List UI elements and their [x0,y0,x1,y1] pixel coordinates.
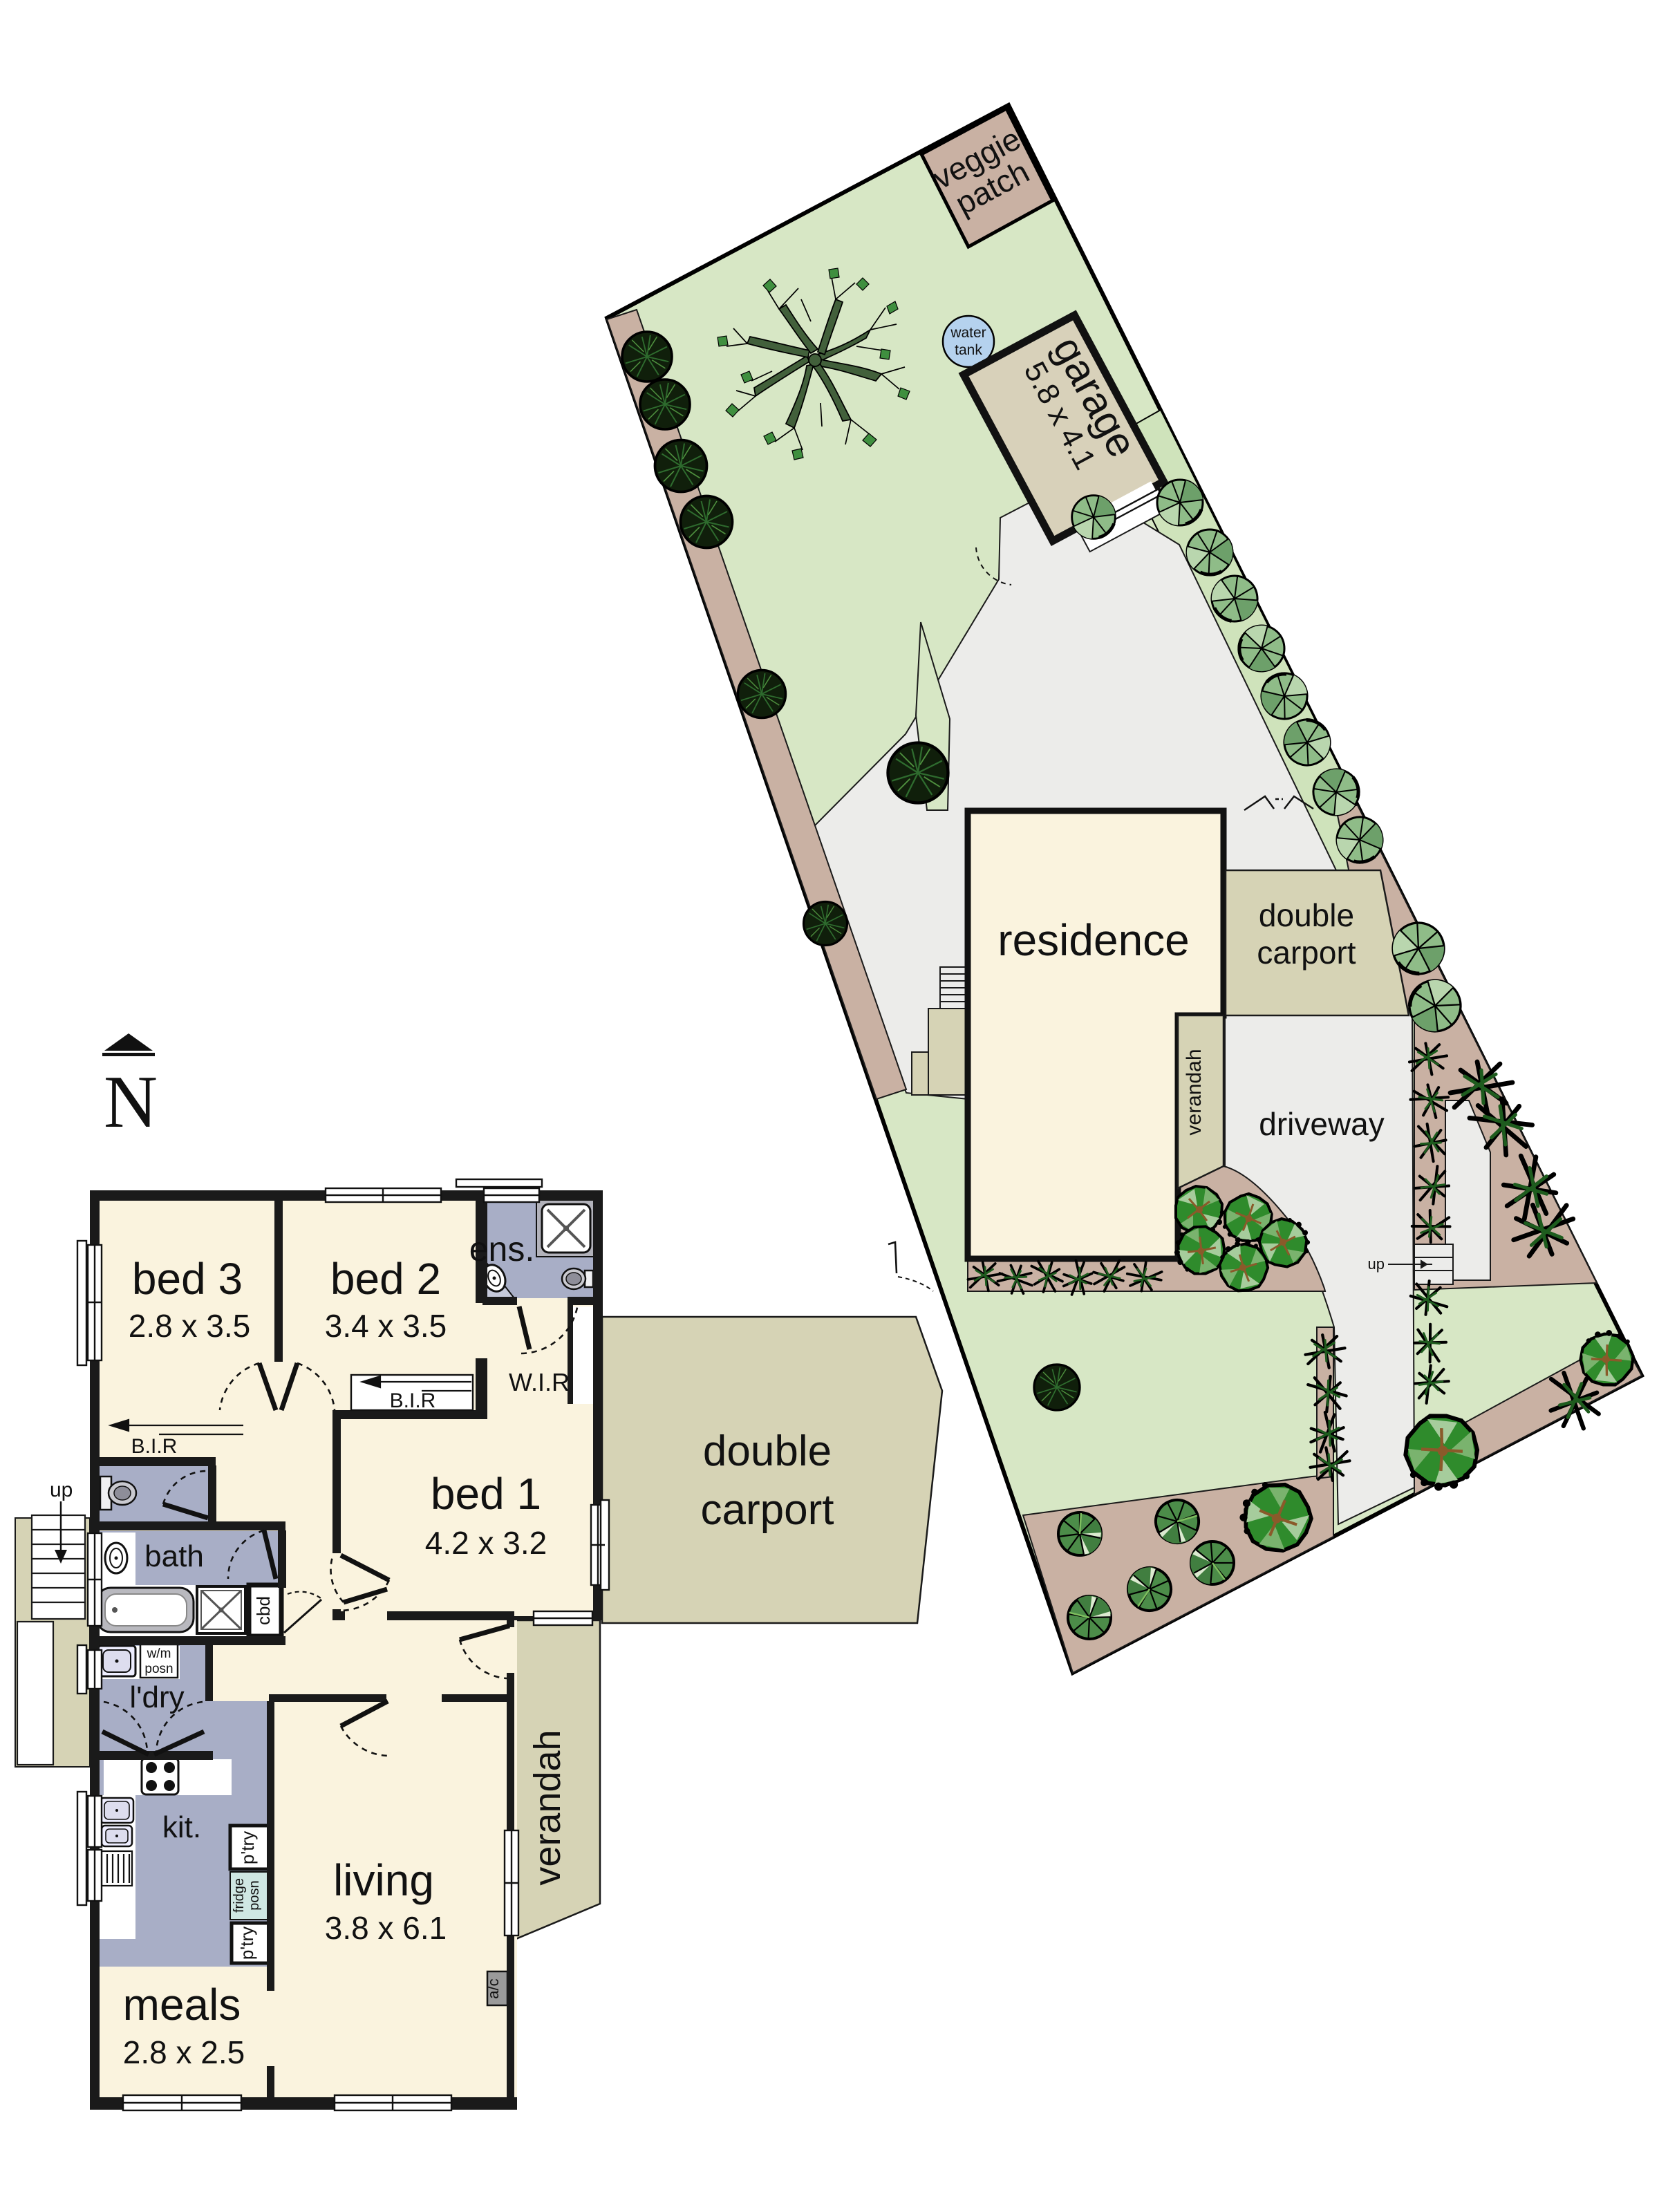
svg-text:water: water [950,325,986,341]
svg-text:p'try: p'try [236,1927,257,1960]
svg-text:cbd: cbd [253,1596,274,1625]
svg-text:meals: meals [123,1980,241,2030]
svg-text:posn: posn [144,1662,173,1676]
svg-text:3.4 x 3.5: 3.4 x 3.5 [325,1308,447,1344]
svg-text:l'dry: l'dry [129,1680,184,1714]
svg-text:N: N [104,1061,158,1143]
svg-text:driveway: driveway [1259,1106,1385,1142]
svg-text:up: up [50,1479,73,1501]
svg-text:a/c: a/c [485,1978,502,1998]
svg-text:verandah: verandah [527,1730,568,1885]
svg-text:bath: bath [144,1539,204,1573]
svg-text:3.8 x 6.1: 3.8 x 6.1 [325,1910,447,1946]
svg-text:carport: carport [701,1486,834,1534]
svg-text:2.8 x 3.5: 2.8 x 3.5 [129,1308,250,1344]
svg-text:bed 1: bed 1 [431,1469,541,1519]
svg-text:verandah: verandah [1183,1049,1206,1135]
svg-text:w/m: w/m [147,1647,171,1661]
svg-text:2.8 x 2.5: 2.8 x 2.5 [123,2034,245,2070]
svg-text:residence: residence [997,915,1190,965]
svg-text:carport: carport [1257,935,1356,971]
svg-text:B.I.R: B.I.R [131,1435,178,1458]
svg-text:bed 2: bed 2 [330,1254,441,1304]
svg-text:fridge: fridge [232,1878,247,1913]
svg-text:living: living [333,1855,434,1905]
svg-text:4.2 x 3.2: 4.2 x 3.2 [425,1525,547,1561]
svg-text:B.I.R: B.I.R [390,1389,436,1412]
svg-text:ens.: ens. [469,1230,535,1268]
svg-text:double: double [1259,897,1354,933]
svg-text:p'try: p'try [237,1831,258,1864]
svg-text:W.I.R: W.I.R [509,1368,570,1396]
svg-text:up: up [1368,1255,1385,1273]
svg-text:tank: tank [955,342,982,358]
svg-text:double: double [703,1427,832,1475]
svg-text:posn: posn [247,1880,262,1910]
svg-text:kit.: kit. [162,1810,201,1844]
svg-text:bed 3: bed 3 [132,1254,243,1304]
